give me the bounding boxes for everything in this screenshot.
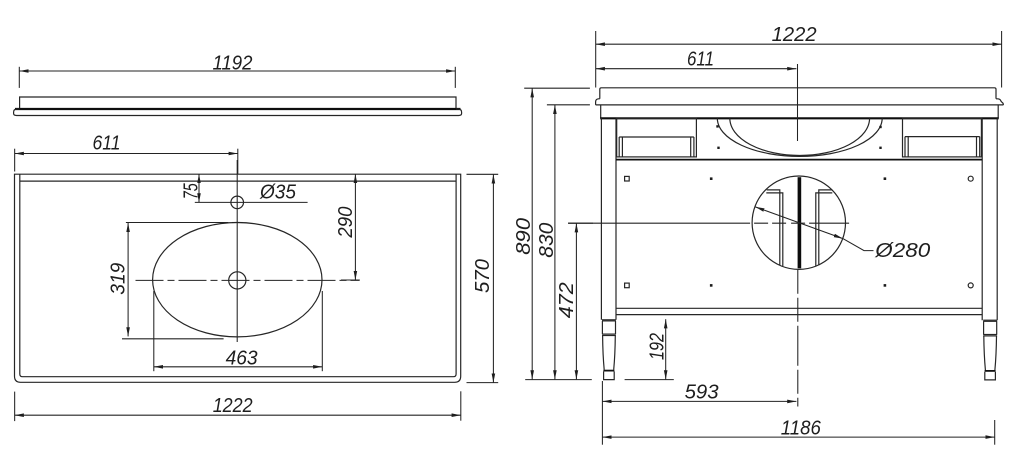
svg-text:290: 290 [335, 207, 357, 239]
svg-text:570: 570 [472, 259, 494, 293]
svg-text:472: 472 [556, 282, 578, 318]
svg-text:Ø35: Ø35 [259, 182, 297, 204]
svg-text:192: 192 [647, 333, 669, 360]
svg-text:611: 611 [687, 48, 714, 70]
svg-text:611: 611 [93, 132, 121, 154]
svg-text:463: 463 [226, 348, 258, 370]
svg-text:319: 319 [108, 263, 130, 295]
svg-text:830: 830 [536, 223, 558, 258]
svg-text:890: 890 [513, 218, 535, 255]
svg-text:75: 75 [180, 183, 202, 200]
svg-text:1192: 1192 [213, 53, 253, 75]
svg-text:593: 593 [685, 382, 719, 404]
svg-text:1222: 1222 [213, 395, 253, 417]
svg-text:1186: 1186 [781, 417, 822, 439]
svg-text:1222: 1222 [772, 24, 817, 46]
svg-text:Ø280: Ø280 [874, 240, 930, 262]
